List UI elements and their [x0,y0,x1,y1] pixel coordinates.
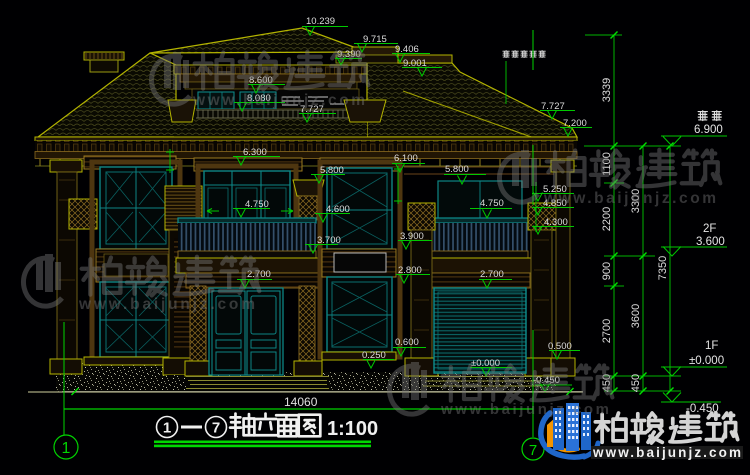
svg-text:3600: 3600 [630,304,642,328]
svg-text:4.750: 4.750 [480,198,504,209]
svg-text:7350: 7350 [657,256,669,280]
svg-text:6.900: 6.900 [694,124,723,136]
svg-text:3.600: 3.600 [696,236,725,248]
svg-text:2200: 2200 [601,207,613,231]
svg-text:2F: 2F [703,223,716,235]
svg-text:450: 450 [630,374,642,392]
svg-text:1F: 1F [705,340,718,352]
svg-text:10.239: 10.239 [306,16,335,27]
svg-text:900: 900 [601,262,613,280]
svg-text:1: 1 [62,440,71,457]
svg-text:1:100: 1:100 [327,418,378,440]
svg-text:7: 7 [212,420,220,437]
svg-text:0.600: 0.600 [395,337,419,348]
svg-text:5.800: 5.800 [445,164,469,175]
svg-text:6.100: 6.100 [394,153,418,164]
svg-text:3339: 3339 [601,78,613,102]
svg-text:2.700: 2.700 [480,269,504,280]
svg-text:1: 1 [163,420,171,437]
svg-text:14060: 14060 [284,395,318,409]
svg-text:2700: 2700 [601,319,613,343]
svg-text:7: 7 [529,442,537,459]
svg-text:±0.000: ±0.000 [689,355,724,367]
svg-text:-0.450: -0.450 [686,403,719,415]
